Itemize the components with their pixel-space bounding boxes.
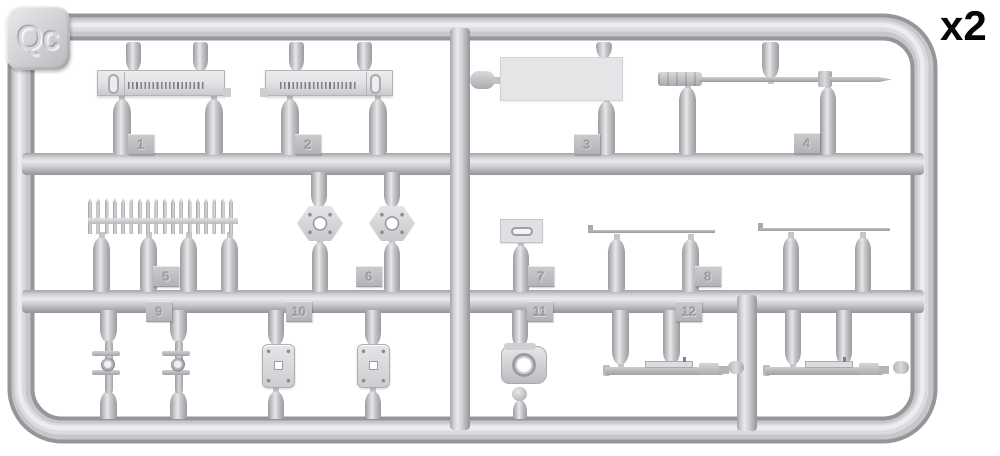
- part-8-rod: [588, 225, 715, 235]
- rod-shaft: [760, 228, 890, 231]
- bullet: [171, 198, 175, 234]
- plate-slot: [511, 227, 533, 236]
- part-10-backplate: [262, 344, 295, 388]
- ammo-box-seam: [124, 72, 125, 95]
- barrel-muzzle: [830, 77, 892, 82]
- bullet: [96, 198, 100, 234]
- sprue-gate: [311, 172, 327, 208]
- barrel-breech: [658, 72, 702, 86]
- bullet: [229, 198, 233, 234]
- gun-sight: [683, 357, 686, 362]
- sprue-gate: [289, 42, 304, 72]
- backplate-square-hole: [369, 361, 378, 370]
- part-number-tag: 4: [794, 133, 820, 154]
- bracket-boss: [101, 358, 116, 372]
- sprue-gate: [221, 237, 238, 292]
- gun-stub: [879, 366, 889, 374]
- backplate-square-hole: [274, 361, 283, 370]
- part-12-machine-gun-body: [763, 355, 909, 380]
- bullet: [204, 198, 208, 234]
- sprue-code-label: Qc: [17, 19, 59, 57]
- sprue-sheet: 1 2 3 4 5 6 7 8 9 10 11 12 Qc x2: [0, 0, 1000, 456]
- part-5-ammo-belt: [88, 198, 238, 238]
- mount-hole: [512, 353, 536, 377]
- runner-horizontal-upper: [22, 153, 924, 175]
- part-number-tag: 11: [527, 301, 553, 322]
- ammo-belt-perforations: [128, 82, 206, 89]
- sprue-gate: [820, 87, 836, 155]
- bullet: [196, 198, 200, 234]
- part-number-tag: 1: [128, 134, 154, 155]
- bracket-arm: [92, 351, 120, 356]
- quantity-label: x2: [940, 2, 987, 50]
- bullet: [138, 198, 142, 234]
- bullet: [179, 198, 183, 234]
- belt-link-band: [88, 218, 238, 224]
- part-2-ammo-box: [265, 70, 393, 96]
- bullet: [188, 198, 192, 234]
- bracket-arm: [162, 351, 190, 356]
- ammo-belt-perforations: [280, 82, 358, 89]
- part-7-slotted-plate: [500, 219, 543, 243]
- part-number-tag: 6: [356, 266, 382, 287]
- bullet: [88, 198, 92, 234]
- bullet: [113, 198, 117, 234]
- sprue-gate: [728, 361, 744, 374]
- ammo-box-latch: [260, 88, 268, 97]
- sprue-gate: [205, 99, 223, 155]
- sprue-gate: [384, 172, 400, 208]
- bracket-boss: [171, 358, 186, 372]
- ammo-box-slot: [370, 74, 381, 94]
- part-number-tag: 3: [574, 134, 600, 155]
- sprue-gate: [365, 391, 381, 419]
- gun-feed-cover: [805, 361, 853, 368]
- sprue-gate: [679, 87, 696, 155]
- sprue-gate: [608, 239, 625, 292]
- bullet: [212, 198, 216, 234]
- ammo-box-seam: [366, 72, 367, 95]
- ammo-box-slot: [108, 74, 119, 94]
- part-12-machine-gun-body: [603, 355, 744, 380]
- bullet: [129, 198, 133, 234]
- sprue-gate: [783, 237, 799, 292]
- sprue-gate: [180, 237, 197, 292]
- sprue-gate: [598, 101, 615, 155]
- sprue-gate: [893, 361, 909, 374]
- part-1-ammo-box: [97, 70, 225, 96]
- part-11-gun-mount: [501, 346, 547, 384]
- part-8-rod: [758, 223, 890, 233]
- ammo-box-latch: [223, 88, 231, 97]
- bullet: [154, 198, 158, 234]
- sprue-gate: [93, 237, 110, 292]
- sprue-gate: [369, 99, 387, 155]
- gun-feed-cover: [645, 361, 693, 368]
- part-3-flat-plate: [500, 57, 623, 101]
- sprue-gate: [193, 42, 208, 72]
- barrel-tube: [700, 77, 820, 82]
- sprue-gate: [312, 242, 328, 292]
- part-11-ball: [512, 387, 527, 401]
- sprue-gate: [357, 42, 372, 72]
- bullet: [221, 198, 225, 234]
- part-4-gun-barrel: [658, 68, 892, 90]
- part-10-backplate: [357, 344, 390, 388]
- part-number-tag: 9: [146, 301, 172, 322]
- part-9-bracket: [92, 338, 126, 396]
- part-number-tag: 10: [286, 301, 312, 322]
- bullet: [105, 198, 109, 234]
- part-number-tag: 12: [676, 301, 702, 322]
- part-number-tag: 7: [528, 266, 554, 287]
- part-9-bracket: [162, 338, 196, 396]
- bullet: [163, 198, 167, 234]
- sprue-gate: [268, 310, 284, 346]
- rod-shaft: [590, 230, 715, 233]
- barrel-collar: [818, 71, 832, 87]
- bullet: [146, 198, 150, 234]
- sprue-gate: [513, 400, 527, 419]
- sprue-code-tab: Qc: [6, 6, 70, 70]
- sprue-gate: [268, 391, 284, 419]
- sprue-gate: [470, 71, 495, 89]
- sprue-gate: [365, 310, 381, 346]
- runner-vertical-middle: [450, 28, 470, 430]
- sprue-gate: [513, 245, 529, 292]
- bullet: [121, 198, 125, 234]
- sprue-gate: [384, 242, 400, 292]
- part-number-tag: 2: [295, 134, 321, 155]
- sprue-gate: [126, 42, 141, 72]
- part-number-tag: 8: [695, 266, 721, 287]
- mount-top-lip: [504, 343, 536, 350]
- sprue-gate: [855, 237, 871, 292]
- gun-sight: [843, 357, 846, 362]
- part-number-tag: 5: [153, 266, 179, 287]
- gun-block: [699, 363, 719, 375]
- gun-block: [859, 363, 879, 375]
